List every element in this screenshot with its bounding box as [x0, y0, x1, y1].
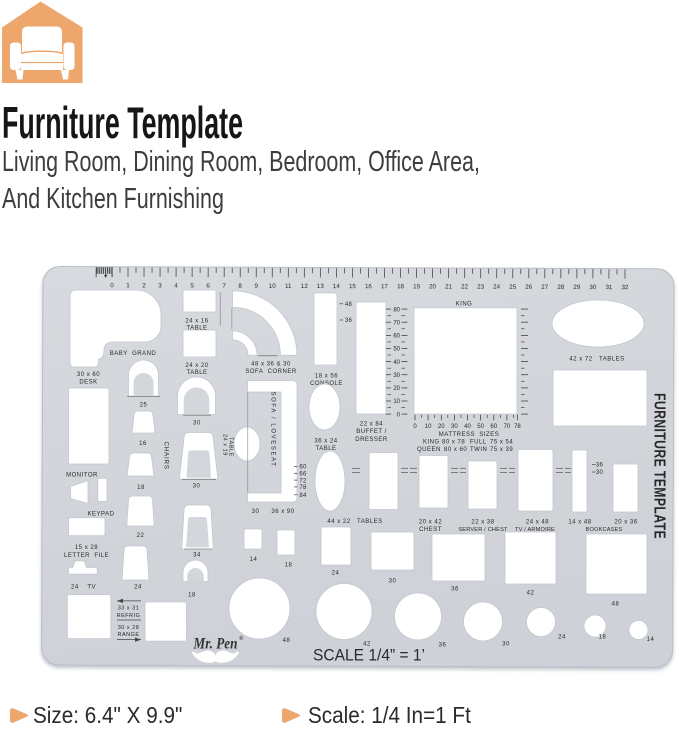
svg-text:32: 32: [621, 284, 628, 291]
svg-text:30: 30: [193, 484, 201, 490]
svg-text:1: 1: [126, 282, 130, 289]
svg-text:36: 36: [345, 318, 353, 324]
svg-text:20 x 36: 20 x 36: [614, 520, 637, 526]
svg-text:24: 24: [134, 585, 142, 591]
svg-text:CHAIRS: CHAIRS: [163, 442, 170, 470]
svg-text:24 x 48: 24 x 48: [526, 520, 549, 526]
svg-text:50: 50: [477, 424, 484, 430]
svg-text:75 x 54: 75 x 54: [490, 440, 513, 446]
svg-text:48: 48: [283, 638, 291, 644]
svg-text:22 x 84: 22 x 84: [360, 422, 383, 428]
svg-text:36: 36: [596, 463, 604, 469]
svg-text:18: 18: [397, 283, 404, 290]
svg-text:TABLE: TABLE: [186, 370, 207, 376]
svg-text:KING: KING: [423, 440, 440, 446]
svg-text:RANGE: RANGE: [117, 632, 139, 638]
svg-text:15 x 28: 15 x 28: [75, 545, 98, 551]
svg-text:40: 40: [393, 360, 400, 366]
svg-text:18 x 56: 18 x 56: [315, 374, 338, 380]
svg-text:20: 20: [429, 283, 436, 290]
svg-text:20 x 42: 20 x 42: [419, 520, 442, 526]
svg-text:42 x 72 TABLES: 42 x 72 TABLES: [569, 357, 624, 363]
svg-text:DRESSER: DRESSER: [355, 437, 388, 443]
svg-text:72: 72: [299, 478, 307, 484]
svg-text:40: 40: [464, 424, 471, 430]
svg-text:25: 25: [509, 284, 516, 291]
svg-text:48: 48: [612, 602, 620, 608]
svg-text:24: 24: [558, 635, 566, 641]
svg-text:2: 2: [142, 282, 146, 289]
svg-text:14: 14: [333, 283, 340, 290]
svg-text:50: 50: [393, 347, 400, 353]
svg-text:24 x 19: 24 x 19: [222, 434, 228, 456]
svg-text:TABLE: TABLE: [315, 446, 336, 452]
svg-text:30: 30: [596, 470, 604, 476]
svg-text:11: 11: [285, 283, 292, 290]
svg-text:60: 60: [299, 465, 307, 471]
svg-text:TWIN: TWIN: [470, 447, 487, 453]
svg-text:DESK: DESK: [79, 380, 97, 386]
svg-text:30: 30: [252, 509, 260, 515]
svg-text:29: 29: [573, 284, 580, 291]
svg-text:SOFA CORNER: SOFA CORNER: [245, 369, 297, 375]
svg-text:20: 20: [438, 424, 445, 430]
svg-text:48: 48: [345, 302, 353, 308]
svg-text:CHEST: CHEST: [419, 527, 442, 533]
svg-text:BABY GRAND: BABY GRAND: [110, 351, 157, 357]
svg-text:48 x 36 & 30: 48 x 36 & 30: [251, 362, 291, 368]
svg-text:36: 36: [451, 587, 459, 593]
svg-text:KEYPAD: KEYPAD: [88, 512, 115, 518]
svg-text:10: 10: [269, 283, 276, 290]
svg-text:MATTRESS SIZES: MATTRESS SIZES: [439, 432, 499, 438]
svg-text:70: 70: [393, 320, 400, 326]
svg-text:17: 17: [381, 283, 388, 290]
svg-text:13: 13: [317, 283, 324, 290]
svg-text:9: 9: [254, 283, 258, 290]
svg-text:15: 15: [349, 283, 356, 290]
svg-text:60: 60: [490, 424, 497, 430]
svg-text:5: 5: [190, 283, 194, 290]
svg-text:FULL: FULL: [470, 440, 487, 446]
svg-text:66: 66: [299, 472, 307, 478]
svg-text:SERVER / CHEST: SERVER / CHEST: [458, 527, 508, 533]
svg-text:30 x 60: 30 x 60: [77, 372, 100, 378]
svg-text:78: 78: [299, 485, 307, 491]
svg-text:78: 78: [514, 424, 521, 430]
svg-text:BUFFET /: BUFFET /: [356, 429, 387, 435]
svg-text:22 x 38: 22 x 38: [471, 520, 494, 526]
svg-text:MONITOR: MONITOR: [66, 473, 98, 479]
svg-text:24 x 16: 24 x 16: [185, 319, 208, 325]
svg-text:8: 8: [238, 283, 242, 290]
svg-text:23: 23: [477, 284, 484, 291]
svg-text:18: 18: [599, 635, 607, 641]
svg-text:42: 42: [527, 591, 535, 597]
svg-text:14 x 48: 14 x 48: [568, 520, 591, 526]
svg-text:FURNITURE TEMPLATE: FURNITURE TEMPLATE: [650, 393, 667, 539]
svg-text:BOOKCASES: BOOKCASES: [586, 527, 623, 533]
svg-text:19: 19: [413, 283, 420, 290]
svg-text:30: 30: [193, 421, 201, 427]
svg-text:18: 18: [137, 485, 145, 491]
svg-text:24: 24: [332, 571, 340, 577]
svg-text:80 x 78: 80 x 78: [442, 440, 465, 446]
svg-text:QUEEN: QUEEN: [417, 447, 441, 453]
svg-text:14: 14: [250, 557, 258, 563]
svg-text:44 x 22 TABLES: 44 x 22 TABLES: [327, 519, 382, 525]
svg-text:36 x 90: 36 x 90: [271, 509, 294, 515]
svg-text:LETTER FILE: LETTER FILE: [64, 553, 109, 559]
svg-text:6: 6: [206, 283, 210, 290]
svg-text:24 x 20: 24 x 20: [185, 363, 208, 369]
svg-text:24 TV: 24 TV: [71, 585, 96, 591]
svg-text:36 x 24: 36 x 24: [314, 439, 337, 445]
svg-text:22: 22: [137, 533, 145, 539]
svg-text:3: 3: [158, 282, 162, 289]
svg-text:21: 21: [445, 283, 452, 290]
svg-text:16: 16: [139, 441, 147, 447]
svg-text:SOFA / LOVESEAT: SOFA / LOVESEAT: [270, 392, 276, 467]
svg-text:80: 80: [393, 307, 400, 313]
svg-text:SCALE 1/4” = 1’: SCALE 1/4” = 1’: [313, 646, 425, 665]
svg-text:34: 34: [193, 553, 201, 559]
svg-text:10: 10: [393, 399, 400, 405]
svg-text:KING: KING: [456, 302, 473, 308]
svg-text:30: 30: [589, 284, 596, 291]
svg-text:TABLE: TABLE: [228, 437, 234, 457]
svg-text:33 x 31: 33 x 31: [118, 606, 140, 612]
svg-text:Mr. Pen: Mr. Pen: [193, 636, 238, 653]
svg-text:REFRIG: REFRIG: [117, 613, 141, 619]
svg-text:7: 7: [222, 283, 226, 290]
svg-text:30: 30: [502, 642, 510, 648]
svg-text:30 x 28: 30 x 28: [118, 625, 140, 631]
svg-text:25: 25: [140, 403, 148, 409]
svg-text:10: 10: [425, 424, 432, 430]
svg-text:75 x 39: 75 x 39: [490, 447, 513, 453]
svg-text:80 x 60: 80 x 60: [444, 447, 467, 453]
svg-text:84: 84: [299, 493, 307, 499]
svg-text:60: 60: [393, 334, 400, 340]
svg-text:18: 18: [285, 563, 293, 569]
svg-text:28: 28: [557, 284, 564, 291]
svg-text:30: 30: [389, 579, 397, 585]
svg-text:4: 4: [174, 282, 178, 289]
svg-text:27: 27: [541, 284, 548, 291]
svg-text:20: 20: [393, 386, 400, 392]
svg-text:12: 12: [301, 283, 308, 290]
svg-text:30: 30: [451, 424, 458, 430]
svg-text:31: 31: [605, 284, 612, 291]
svg-text:36: 36: [439, 643, 447, 649]
svg-text:16: 16: [365, 283, 372, 290]
svg-text:0: 0: [110, 282, 114, 289]
svg-text:18: 18: [188, 593, 196, 599]
svg-text:14: 14: [647, 637, 655, 643]
svg-text:70: 70: [504, 424, 511, 430]
svg-text:22: 22: [461, 284, 468, 291]
svg-text:24: 24: [493, 284, 500, 291]
svg-text:30: 30: [393, 373, 400, 379]
svg-text:26: 26: [525, 284, 532, 291]
svg-text:®: ®: [239, 635, 244, 642]
